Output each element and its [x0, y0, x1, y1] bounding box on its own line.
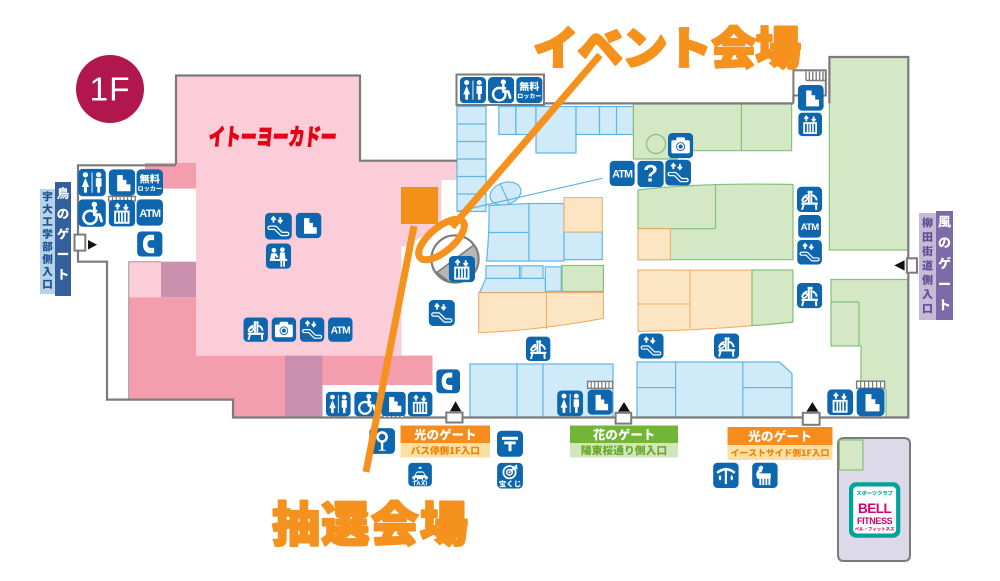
svg-text:1F: 1F: [89, 72, 130, 109]
svg-text:BELL: BELL: [858, 501, 892, 516]
svg-text:FITNESS: FITNESS: [857, 516, 893, 526]
